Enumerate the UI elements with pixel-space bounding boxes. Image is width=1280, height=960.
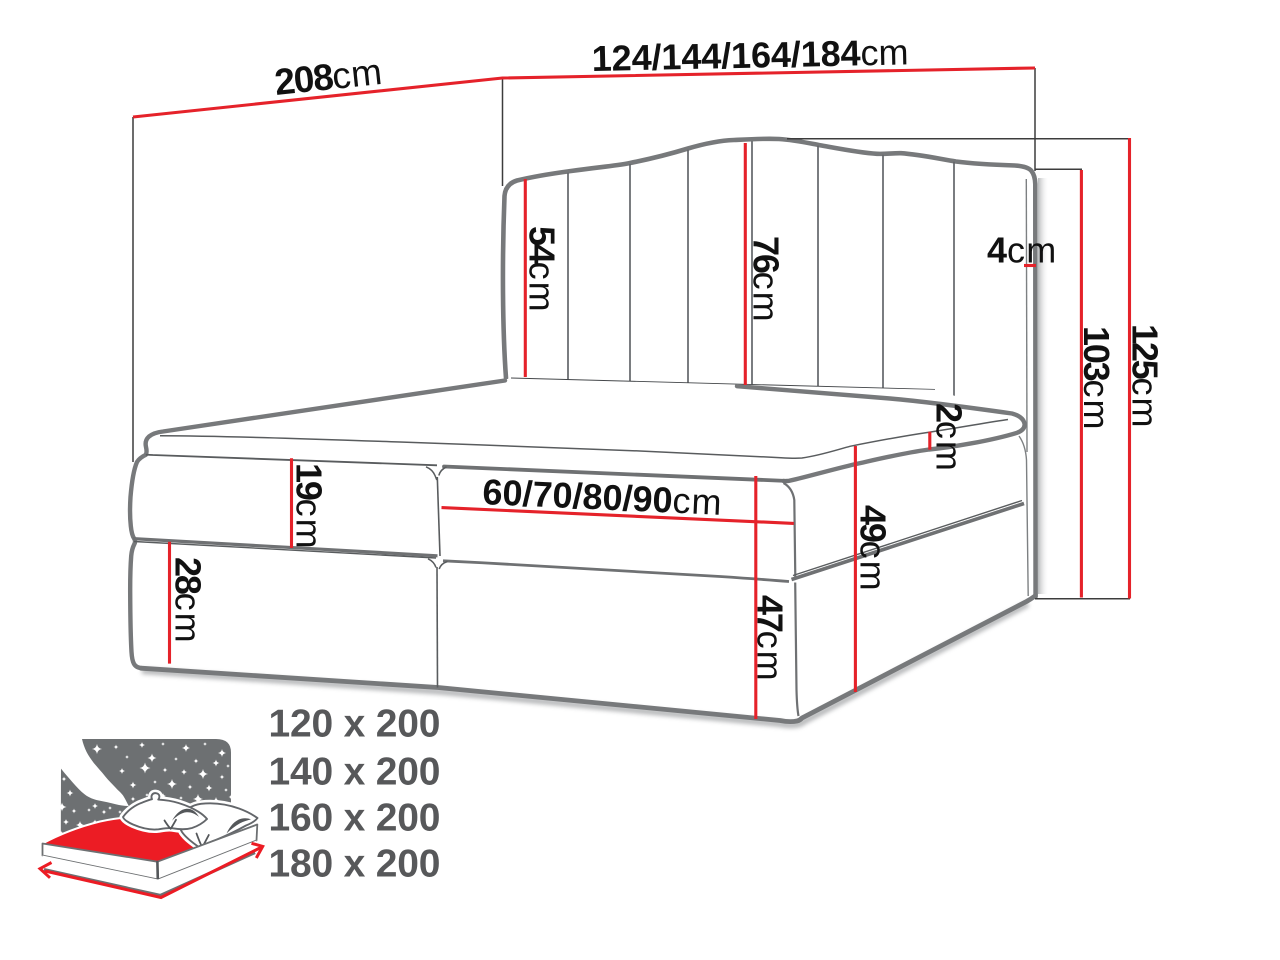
svg-text:54cm: 54cm <box>521 226 562 314</box>
svg-text:19cm: 19cm <box>289 463 330 551</box>
svg-text:2cm: 2cm <box>929 403 970 473</box>
svg-text:103cm: 103cm <box>1076 326 1117 431</box>
svg-text:124/144/164/184cm: 124/144/164/184cm <box>591 31 909 79</box>
svg-text:140 x 200: 140 x 200 <box>269 751 441 794</box>
svg-text:160 x 200: 160 x 200 <box>269 797 441 840</box>
svg-text:47cm: 47cm <box>750 595 791 683</box>
svg-text:28cm: 28cm <box>168 557 209 645</box>
svg-text:4cm: 4cm <box>987 230 1057 271</box>
svg-text:120 x 200: 120 x 200 <box>269 703 441 746</box>
svg-text:125cm: 125cm <box>1125 324 1166 429</box>
svg-text:180 x 200: 180 x 200 <box>269 843 441 886</box>
svg-text:49cm: 49cm <box>853 505 894 593</box>
svg-text:208cm: 208cm <box>273 51 385 103</box>
svg-text:76cm: 76cm <box>746 236 787 324</box>
svg-text:60/70/80/90cm: 60/70/80/90cm <box>482 471 724 523</box>
